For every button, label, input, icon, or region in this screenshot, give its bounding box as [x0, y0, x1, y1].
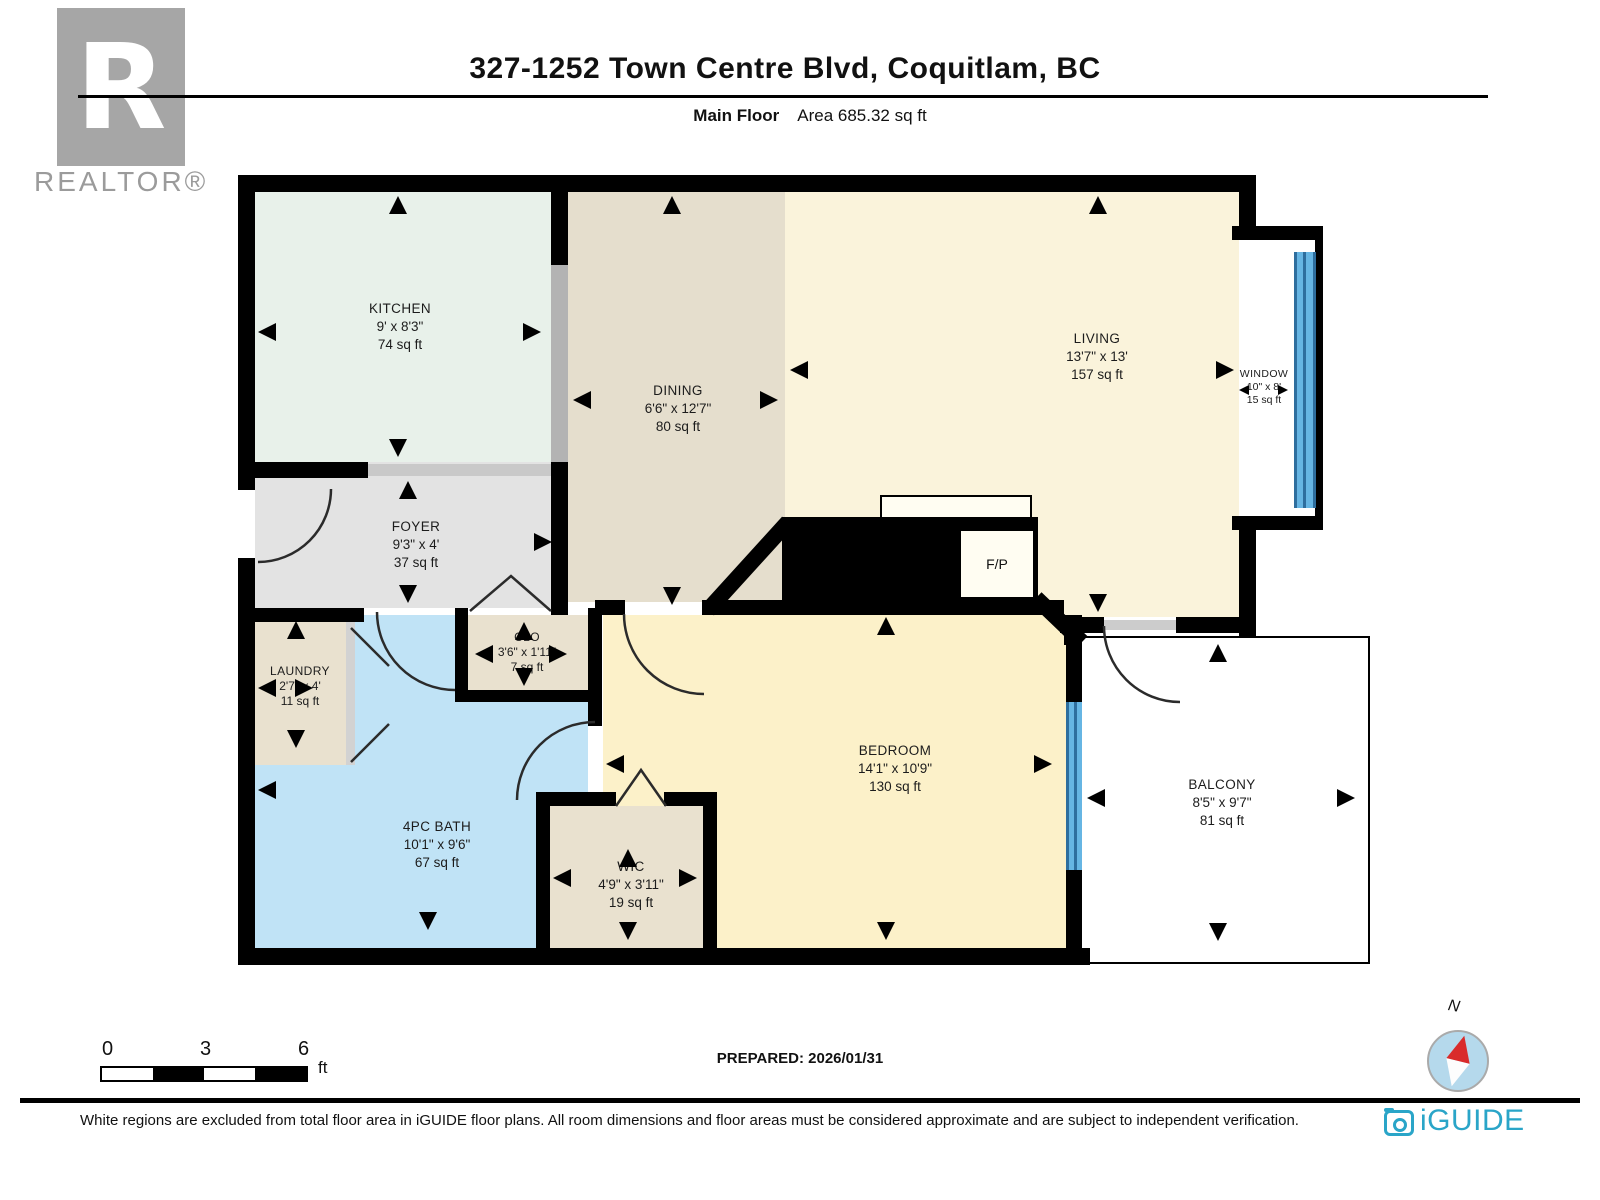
realtor-wordmark: REALTOR® — [34, 166, 254, 198]
dimension-arrow-icon — [295, 679, 313, 697]
kitchen-partial-wall — [551, 265, 568, 463]
dimension-arrow-icon — [399, 585, 417, 603]
floor-subheader: Main FloorArea 685.32 sq ft — [0, 106, 1600, 126]
prepared-date: PREPARED: 2026/01/31 — [0, 1050, 1600, 1067]
dimension-arrow-icon — [1089, 594, 1107, 612]
laundry-partial-wall — [346, 620, 355, 765]
wall — [238, 175, 1256, 192]
compass-icon — [1427, 1030, 1489, 1092]
wall — [703, 792, 717, 948]
dimension-arrow-icon — [515, 622, 533, 640]
realtor-logo: R — [57, 8, 185, 166]
dimension-arrow-icon — [419, 912, 437, 930]
dimension-arrow-icon — [1337, 789, 1355, 807]
dimension-arrow-icon — [1209, 923, 1227, 941]
dimension-arrow-icon — [573, 391, 591, 409]
dimension-arrow-icon — [534, 533, 552, 551]
living-doorway-sill — [1104, 620, 1176, 630]
wall — [1315, 226, 1323, 530]
dimension-arrow-icon — [287, 621, 305, 639]
wall — [551, 191, 568, 265]
dimension-arrow-icon — [258, 679, 276, 697]
dimension-arrow-icon — [663, 196, 681, 214]
realtor-logo-letter: R — [76, 28, 167, 146]
iguide-logo: iGUIDE — [1384, 1102, 1525, 1138]
dimension-arrow-icon — [549, 645, 567, 663]
dimension-arrow-icon — [790, 361, 808, 379]
room-label-bedroom: BEDROOM 14'1" x 10'9" 130 sq ft — [858, 742, 932, 796]
dimension-arrow-icon — [1034, 755, 1052, 773]
dimension-arrow-icon — [399, 481, 417, 499]
dimension-arrow-icon — [475, 645, 493, 663]
dimension-arrow-icon — [389, 196, 407, 214]
page-title: 327-1252 Town Centre Blvd, Coquitlam, BC — [0, 52, 1570, 86]
dimension-arrow-icon — [663, 587, 681, 605]
footer-disclaimer: White regions are excluded from total fl… — [80, 1112, 1299, 1129]
room-label-foyer: FOYER 9'3" x 4' 37 sq ft — [392, 518, 441, 572]
dimension-arrow-icon — [258, 781, 276, 799]
room-label-bath: 4PC BATH 10'1" x 9'6" 67 sq ft — [403, 818, 471, 872]
dimension-arrow-icon — [1278, 385, 1288, 395]
iguide-wordmark: iGUIDE — [1420, 1104, 1525, 1138]
wall — [238, 175, 255, 490]
scale-bar-segments — [100, 1066, 308, 1082]
bay-window-glass — [1294, 252, 1316, 508]
dimension-arrow-icon — [553, 869, 571, 887]
fireplace-label: F/P — [986, 556, 1008, 572]
dimension-arrow-icon — [1216, 361, 1234, 379]
compass-north-label: N — [1447, 997, 1462, 1017]
wall — [588, 688, 602, 726]
dimension-arrow-icon — [619, 849, 637, 867]
kitchen-counter — [368, 464, 551, 476]
room-label-dining: DINING 6'6" x 12'7" 80 sq ft — [645, 382, 712, 436]
dimension-arrow-icon — [619, 922, 637, 940]
wall — [595, 600, 625, 615]
wall — [1232, 226, 1322, 240]
room-label-balcony: BALCONY 8'5" x 9'7" 81 sq ft — [1188, 776, 1255, 830]
fireplace-box: F/P — [961, 531, 1033, 597]
floor-area-label: Area 685.32 sq ft — [797, 106, 926, 125]
wall — [238, 462, 368, 478]
wall — [1176, 617, 1242, 633]
wall — [551, 462, 568, 615]
floor-plan-page: R REALTOR® 327-1252 Town Centre Blvd, Co… — [0, 0, 1600, 1200]
compass-needle — [1423, 1026, 1493, 1096]
wall — [536, 792, 616, 806]
footer-rule — [20, 1098, 1580, 1103]
floor-label: Main Floor — [693, 106, 779, 125]
wall — [238, 948, 1090, 965]
dimension-arrow-icon — [1089, 196, 1107, 214]
title-underline — [78, 95, 1488, 98]
dimension-arrow-icon — [606, 755, 624, 773]
wall — [238, 608, 364, 622]
balcony-door-glass — [1066, 702, 1082, 870]
dimension-arrow-icon — [1209, 644, 1227, 662]
dimension-arrow-icon — [258, 323, 276, 341]
iguide-logo-icon — [1384, 1110, 1414, 1136]
wall — [455, 608, 468, 702]
room-label-kitchen: KITCHEN 9' x 8'3" 74 sq ft — [369, 300, 431, 354]
room-label-living: LIVING 13'7" x 13' 157 sq ft — [1066, 330, 1128, 384]
dimension-arrow-icon — [877, 922, 895, 940]
wall — [455, 690, 602, 702]
dimension-arrow-icon — [287, 730, 305, 748]
dimension-arrow-icon — [760, 391, 778, 409]
fireplace-mantel — [880, 495, 1032, 519]
dimension-arrow-icon — [679, 869, 697, 887]
dimension-arrow-icon — [389, 439, 407, 457]
dimension-arrow-icon — [1239, 385, 1249, 395]
dimension-arrow-icon — [523, 323, 541, 341]
dimension-arrow-icon — [515, 668, 533, 686]
wall — [536, 792, 550, 948]
dimension-arrow-icon — [1087, 789, 1105, 807]
dimension-arrow-icon — [877, 617, 895, 635]
compass-needle-south — [1440, 1058, 1470, 1089]
